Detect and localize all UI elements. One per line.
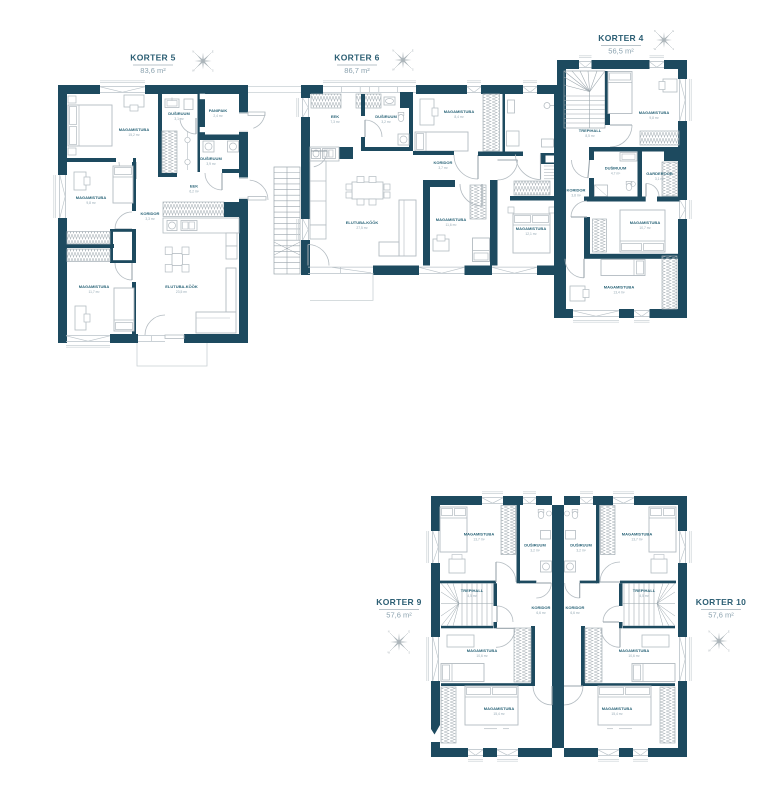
svg-text:KORIDOR: KORIDOR: [532, 605, 551, 610]
svg-text:E: E: [412, 48, 414, 52]
svg-text:KORTER 4: KORTER 4: [598, 33, 643, 43]
svg-text:6,6 m²: 6,6 m²: [570, 611, 580, 615]
svg-text:N: N: [388, 630, 390, 634]
svg-text:2,4 m²: 2,4 m²: [213, 114, 223, 118]
svg-text:6,2 m²: 6,2 m²: [189, 190, 199, 194]
svg-text:10,6 m²: 10,6 m²: [476, 654, 488, 658]
svg-text:3,1 m²: 3,1 m²: [174, 117, 184, 121]
svg-text:6,6 m²: 6,6 m²: [536, 611, 546, 615]
svg-text:27,5 m²: 27,5 m²: [356, 226, 368, 230]
svg-text:10,6 m²: 10,6 m²: [628, 654, 640, 658]
svg-text:3,8 m²: 3,8 m²: [571, 194, 581, 198]
svg-text:11,7 m²: 11,7 m²: [89, 290, 101, 294]
svg-text:56,5 m²: 56,5 m²: [608, 47, 634, 56]
svg-text:MAGAMISTUBA: MAGAMISTUBA: [516, 226, 547, 231]
svg-text:MAGAMISTUBA: MAGAMISTUBA: [467, 648, 498, 653]
svg-text:N: N: [192, 49, 194, 53]
svg-text:S: S: [672, 47, 674, 51]
svg-text:83,6 m²: 83,6 m²: [140, 66, 166, 75]
svg-text:4,5 m²: 4,5 m²: [467, 594, 477, 598]
svg-text:PANIPAIK: PANIPAIK: [209, 108, 228, 113]
svg-text:MAGAMISTUBA: MAGAMISTUBA: [622, 532, 653, 537]
svg-text:EEK: EEK: [190, 184, 198, 189]
svg-text:E: E: [408, 630, 410, 634]
svg-text:3,7 m²: 3,7 m²: [438, 166, 448, 170]
svg-text:N: N: [654, 29, 656, 33]
svg-text:E: E: [672, 29, 674, 33]
svg-text:DUŠIRUUM: DUŠIRUUM: [524, 543, 546, 548]
svg-text:86,7 m²: 86,7 m²: [344, 66, 370, 75]
svg-text:E: E: [728, 629, 730, 633]
svg-text:TREPIHALL: TREPIHALL: [579, 128, 602, 133]
svg-text:15,2 m²: 15,2 m²: [128, 133, 140, 137]
svg-text:S: S: [728, 649, 730, 653]
svg-text:KORTER 10: KORTER 10: [696, 597, 746, 607]
svg-text:DUŠIRUUM: DUŠIRUUM: [375, 114, 397, 119]
svg-text:3,2 m²: 3,2 m²: [381, 120, 391, 124]
svg-text:9,8 m²: 9,8 m²: [649, 116, 659, 120]
svg-text:MAGAMISTUBA: MAGAMISTUBA: [76, 195, 107, 200]
svg-text:12,1 m²: 12,1 m²: [525, 232, 537, 236]
svg-text:KORTER 5: KORTER 5: [130, 53, 175, 63]
svg-text:KORIDOR: KORIDOR: [566, 605, 585, 610]
svg-text:10,7 m²: 10,7 m²: [639, 226, 651, 230]
svg-text:DUŠIRUUM: DUŠIRUUM: [570, 543, 592, 548]
svg-text:MAGAMISTUBA: MAGAMISTUBA: [619, 648, 650, 653]
svg-text:ELUTUBA-KÖÖK: ELUTUBA-KÖÖK: [165, 284, 198, 289]
svg-text:MAGAMISTUBA: MAGAMISTUBA: [604, 285, 635, 290]
svg-text:8,4 m²: 8,4 m²: [454, 115, 464, 119]
svg-text:MAGAMISTUBA: MAGAMISTUBA: [484, 706, 515, 711]
svg-text:MAGAMISTUBA: MAGAMISTUBA: [639, 110, 670, 115]
svg-text:3,2 m²: 3,2 m²: [576, 549, 586, 553]
svg-text:S: S: [408, 650, 410, 654]
svg-text:KORIDOR: KORIDOR: [434, 160, 453, 165]
svg-text:3,2 m²: 3,2 m²: [530, 549, 540, 553]
svg-text:EEK: EEK: [331, 114, 339, 119]
svg-text:13,4 m²: 13,4 m²: [613, 291, 625, 295]
svg-text:MAGAMISTUBA: MAGAMISTUBA: [436, 217, 467, 222]
svg-text:MAGAMISTUBA: MAGAMISTUBA: [79, 284, 110, 289]
svg-text:4,5 m²: 4,5 m²: [639, 594, 649, 598]
svg-text:3,9 m²: 3,9 m²: [206, 162, 216, 166]
svg-text:13,7 m²: 13,7 m²: [473, 538, 485, 542]
svg-text:11,6 m²: 11,6 m²: [446, 223, 458, 227]
svg-text:GARDEROOB: GARDEROOB: [646, 171, 673, 176]
svg-text:S: S: [412, 68, 414, 72]
svg-text:4,7 m²: 4,7 m²: [611, 172, 621, 176]
svg-text:8,5 m²: 8,5 m²: [585, 134, 595, 138]
svg-text:MAGAMISTUBA: MAGAMISTUBA: [119, 127, 150, 132]
svg-text:57,6 m²: 57,6 m²: [386, 611, 412, 620]
svg-text:MAGAMISTUBA: MAGAMISTUBA: [602, 706, 633, 711]
svg-text:KORTER 9: KORTER 9: [376, 597, 421, 607]
svg-text:9,8 m²: 9,8 m²: [86, 201, 96, 205]
svg-text:E: E: [212, 49, 214, 53]
svg-text:KORTER 6: KORTER 6: [334, 53, 379, 63]
svg-text:MAGAMISTUBA: MAGAMISTUBA: [630, 220, 661, 225]
svg-text:57,6 m²: 57,6 m²: [708, 611, 734, 620]
svg-text:7,3 m²: 7,3 m²: [330, 120, 340, 124]
svg-text:3,3 m²: 3,3 m²: [145, 217, 155, 221]
svg-text:15,4 m²: 15,4 m²: [611, 712, 623, 716]
svg-text:23,5 m²: 23,5 m²: [176, 290, 188, 294]
svg-text:MAGAMISTUBA: MAGAMISTUBA: [444, 109, 475, 114]
svg-text:N: N: [392, 48, 394, 52]
svg-text:DUŠIRUUM: DUŠIRUUM: [200, 156, 222, 161]
svg-text:KORIDOR: KORIDOR: [567, 188, 586, 193]
svg-text:S: S: [212, 69, 214, 73]
svg-text:DUŠIRUUM: DUŠIRUUM: [168, 111, 190, 116]
svg-text:TREPIHALL: TREPIHALL: [461, 588, 484, 593]
svg-text:MAGAMISTUBA: MAGAMISTUBA: [464, 532, 495, 537]
svg-text:ELUTUBA-KÖÖK: ELUTUBA-KÖÖK: [346, 220, 379, 225]
svg-text:13,7 m²: 13,7 m²: [631, 538, 643, 542]
svg-text:DUŠIRUUM: DUŠIRUUM: [605, 166, 627, 171]
svg-text:3,1 m²: 3,1 m²: [655, 177, 665, 181]
svg-text:KORIDOR: KORIDOR: [141, 211, 160, 216]
svg-text:15,4 m²: 15,4 m²: [493, 712, 505, 716]
svg-text:N: N: [708, 629, 710, 633]
svg-text:TREPIHALL: TREPIHALL: [633, 588, 656, 593]
